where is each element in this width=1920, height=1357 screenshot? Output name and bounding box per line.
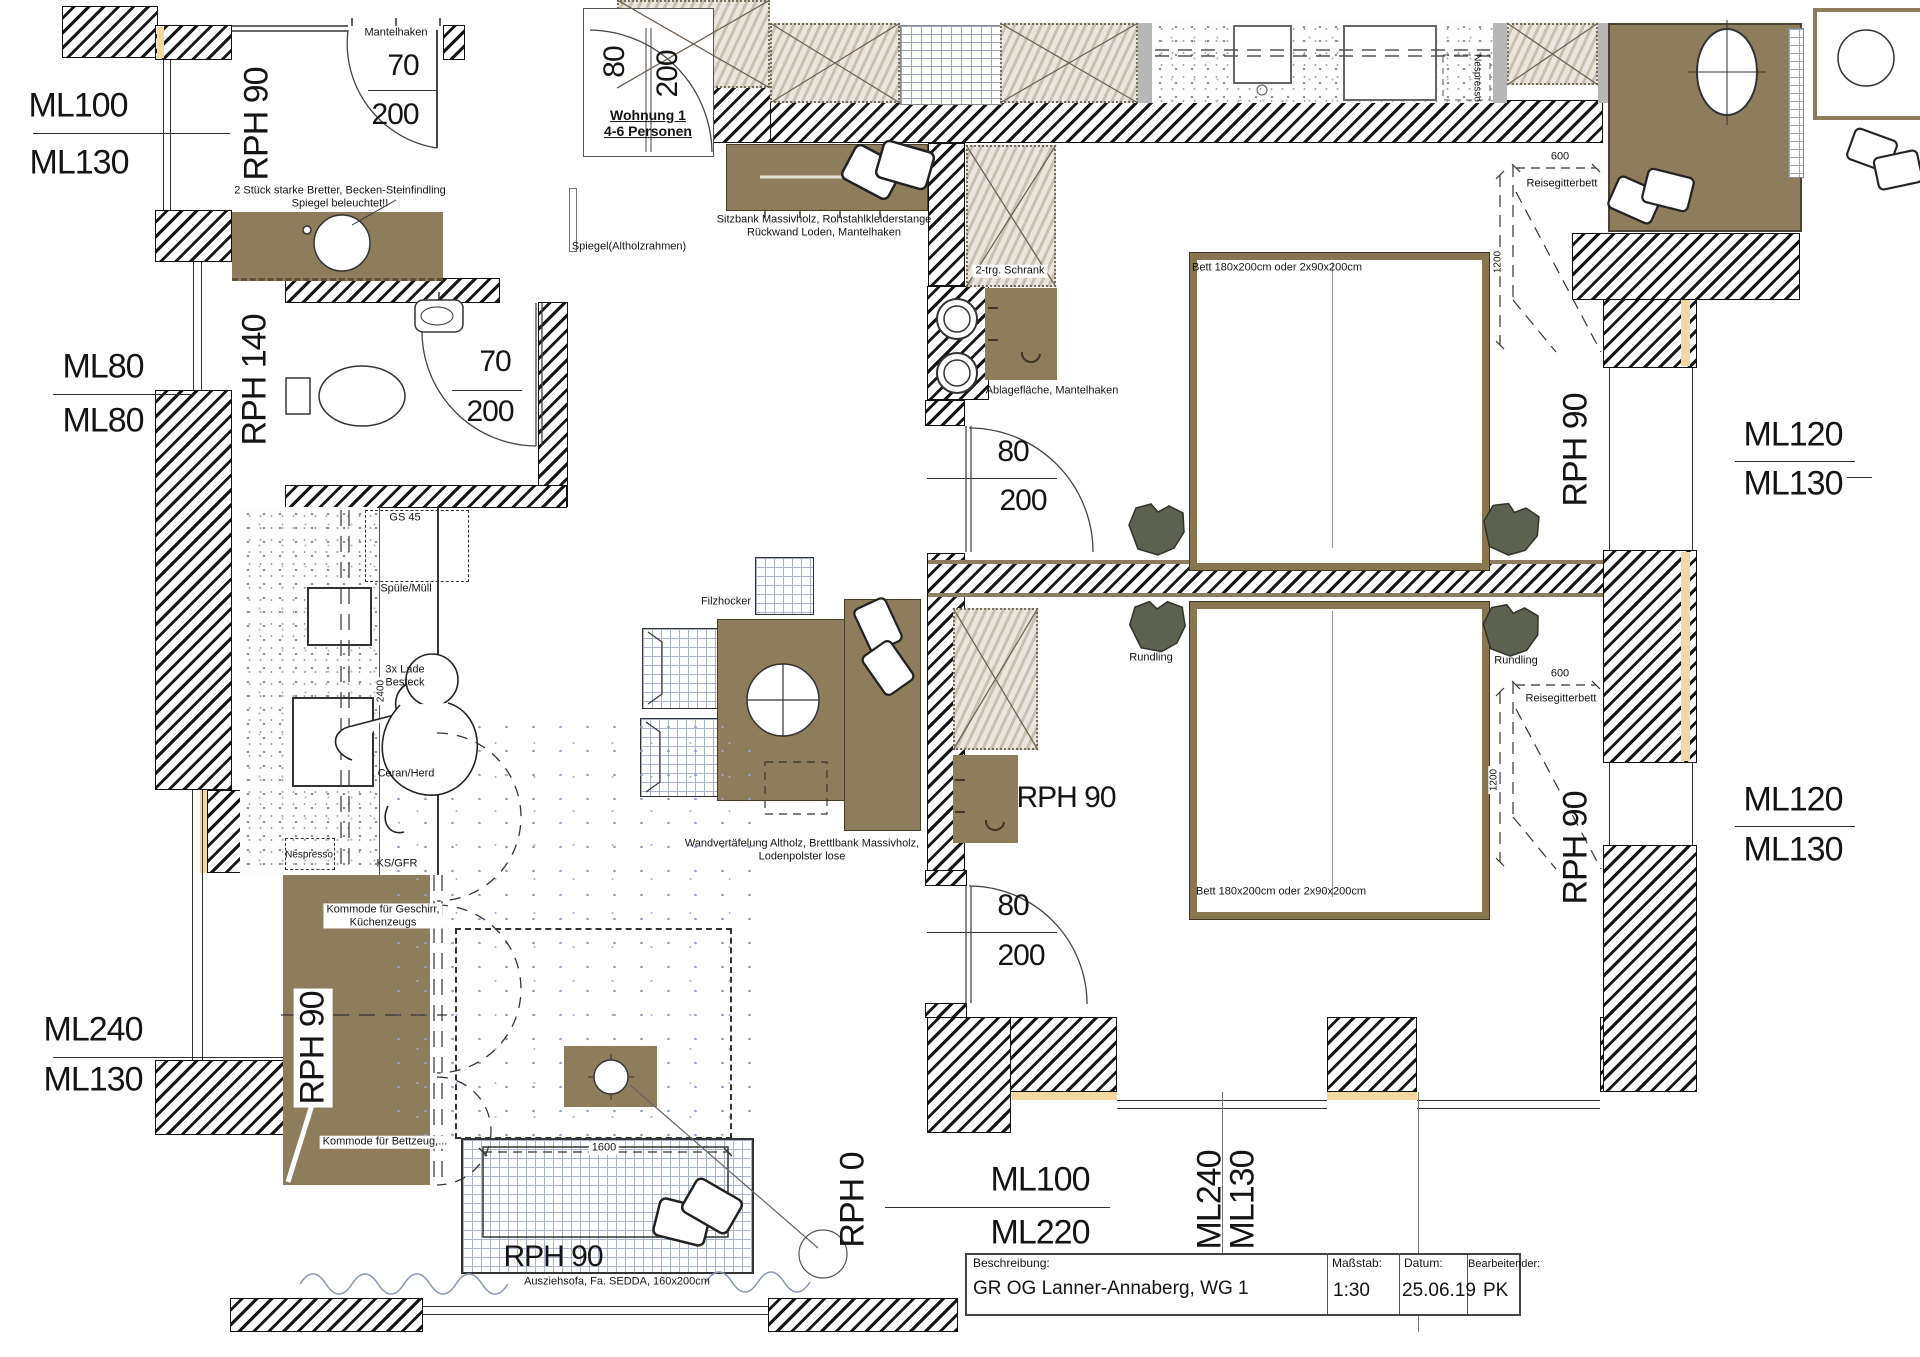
crib-1 (1500, 165, 1601, 352)
door80-entry-w: 80 (598, 46, 632, 77)
dim-1600: 1600 (589, 1142, 619, 1155)
rph90-kommode: RPH 90 (294, 988, 333, 1107)
note-bett1: Bett 180x200cm oder 2x90x200cm (1192, 262, 1362, 275)
ml120-right-a: ML120 (1744, 416, 1843, 455)
note-bett2: Bett 180x200cm oder 2x90x200cm (1196, 886, 1366, 899)
sofa-details (479, 1147, 744, 1247)
note-spiegel: Spiegel(Altholzrahmen) (572, 241, 686, 254)
dim-1200-1: 1200 (1492, 248, 1503, 276)
rph90-bed1: RPH 90 (1557, 393, 1596, 506)
door80-entry-h: 200 (651, 50, 685, 97)
ml100-left: ML100 (29, 87, 128, 126)
note-kommode1: Kommode für Geschirr, Küchenzeugs (323, 903, 442, 928)
ml130-left: ML130 (30, 144, 129, 183)
tb-scale-value: 1:30 (1333, 1280, 1370, 1302)
note-spuele: Spüle/Müll (380, 583, 431, 596)
dim-600-2: 600 (1548, 668, 1572, 681)
ml220-bottom: ML220 (991, 1214, 1090, 1253)
door70-top-w: 70 (387, 49, 418, 83)
tb-description-value: GR OG Lanner-Annaberg, WG 1 (973, 1278, 1249, 1300)
wash-basin (303, 200, 396, 271)
ml80-left-b: ML80 (62, 402, 143, 441)
sitzbank-details (760, 140, 935, 218)
note-gs45: GS 45 (389, 512, 420, 525)
note-mantelhaken: Mantelhaken (365, 27, 428, 40)
tb-editor-value: PK (1483, 1280, 1508, 1302)
door70-bath-w: 70 (479, 345, 510, 379)
door80-bed2-h: 200 (997, 939, 1044, 973)
note-ablage1: Ablagefläche, Mantelhaken (986, 385, 1119, 398)
ml80-left-a: ML80 (62, 348, 143, 387)
ml120-right-b: ML120 (1744, 781, 1843, 820)
note-ausziehsofa: Ausziehsofa, Fa. SEDDA, 160x200cm (524, 1276, 710, 1289)
door70-bath-h: 200 (466, 395, 513, 429)
note-kommode2: Kommode für Bettzeug,... (320, 1136, 451, 1149)
ml130-left-b: ML130 (44, 1061, 143, 1100)
rph0-living: RPH 0 (834, 1152, 873, 1247)
rph140-bath: RPH 140 (236, 315, 275, 446)
rph90-corridor: RPH 90 (238, 67, 277, 180)
note-wandvertaefelung: Wandvertäfelung Altholz, Brettlbank Mass… (685, 837, 919, 862)
coffee-table-circle (594, 1060, 628, 1094)
note-sitzbank: Sitzbank Massivholz, Rohstahlkleiderstan… (717, 213, 932, 238)
title-block-divider-1 (1327, 1255, 1328, 1314)
wohnung-tag: Wohnung 1 4-6 Personen (604, 108, 692, 140)
ml130-right-a: ML130 (1744, 465, 1843, 504)
kommode-arcs (437, 733, 521, 1185)
dining-details (646, 597, 915, 814)
neighbor-bath-lines (1155, 50, 1490, 100)
ml130-right-b: ML130 (1744, 831, 1843, 870)
note-filzhocker: Filzhocker (701, 596, 751, 609)
neighbor-bed-items (1607, 20, 1920, 225)
door80-bed1-w: 80 (997, 435, 1028, 469)
note-rundling1: Rundling (1129, 652, 1172, 665)
tb-editor-label: Bearbeitender: (1468, 1258, 1540, 1271)
ml240-left: ML240 (44, 1011, 143, 1050)
ml100-bottom: ML100 (991, 1161, 1090, 1200)
level-marker (630, 1085, 847, 1278)
dim-1200-2: 1200 (1488, 766, 1499, 794)
tb-date-value: 25.06.19 (1402, 1280, 1476, 1302)
note-schrank1: 2-trg. Schrank (972, 265, 1047, 278)
rph90-bed2: RPH 90 (1557, 791, 1596, 904)
toilet (286, 366, 405, 426)
rph90-bed2-big: RPH 90 (1016, 781, 1115, 815)
note-lade: 3x Lade Besteck (385, 663, 424, 688)
wardrobe-x-lines (617, 0, 1598, 750)
rph90-sofa: RPH 90 (503, 1240, 602, 1274)
door80-bed2-w: 80 (997, 889, 1028, 923)
floor-plan-canvas: ML100ML130ML80ML80ML240ML130ML120ML130ML… (0, 0, 1920, 1357)
tb-scale-label: Maßstab: (1332, 1257, 1382, 1271)
note-rundling2: Rundling (1494, 655, 1537, 668)
note-nespresso-neighbor: Nespresso (1471, 54, 1482, 102)
rundling-stools (1128, 500, 1542, 657)
dim-600-1: 600 (1548, 151, 1572, 164)
door70-top-h: 200 (371, 98, 418, 132)
note-bretter: 2 Stück starke Bretter, Becken-Steinfind… (234, 184, 446, 209)
note-nespresso: Nespresso (285, 849, 333, 860)
door80-bed1-h: 200 (999, 484, 1046, 518)
tb-description-label: Beschreibung: (973, 1257, 1050, 1271)
bath-sink (415, 292, 463, 332)
note-reisegitterbett1: Reisegitterbett (1527, 178, 1598, 191)
chimney-flues (937, 299, 977, 393)
note-ksgfr: KS/GFR (377, 858, 418, 871)
note-ceran: Ceran/Herd (378, 768, 435, 781)
note-reisegitterbett2: Reisegitterbett (1526, 693, 1597, 706)
title-block-divider-2 (1399, 1255, 1400, 1314)
tb-date-label: Datum: (1404, 1257, 1443, 1271)
ml130-bottom: ML130 (1224, 1151, 1263, 1250)
dim-2400: 2400 (375, 677, 386, 705)
